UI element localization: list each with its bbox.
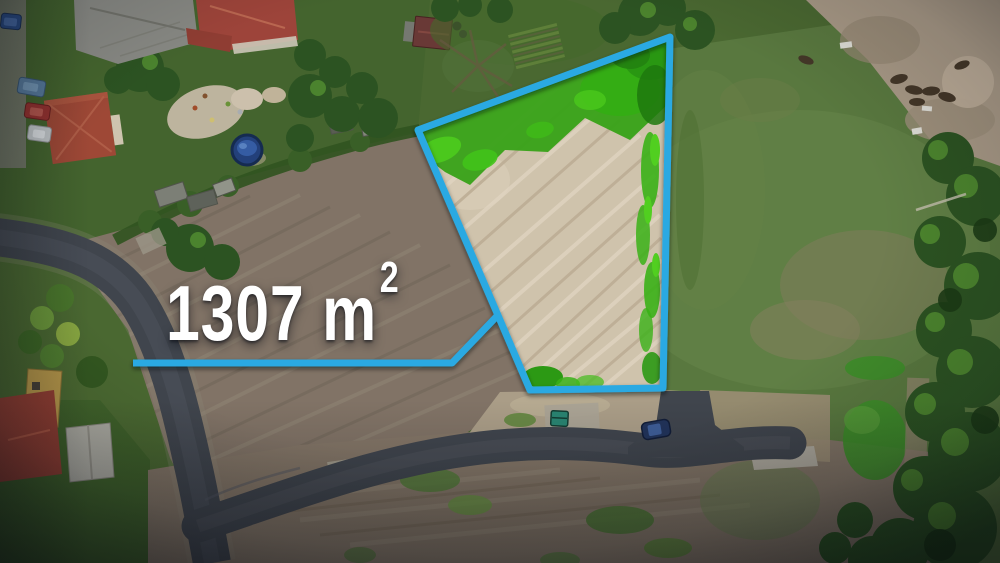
photo-vignette xyxy=(0,0,1000,563)
area-superscript: 2 xyxy=(380,253,400,302)
aerial-photo: 1307 m2 xyxy=(0,0,1000,563)
area-value: 1307 m xyxy=(166,269,377,357)
area-label: 1307 m2 xyxy=(166,274,399,352)
